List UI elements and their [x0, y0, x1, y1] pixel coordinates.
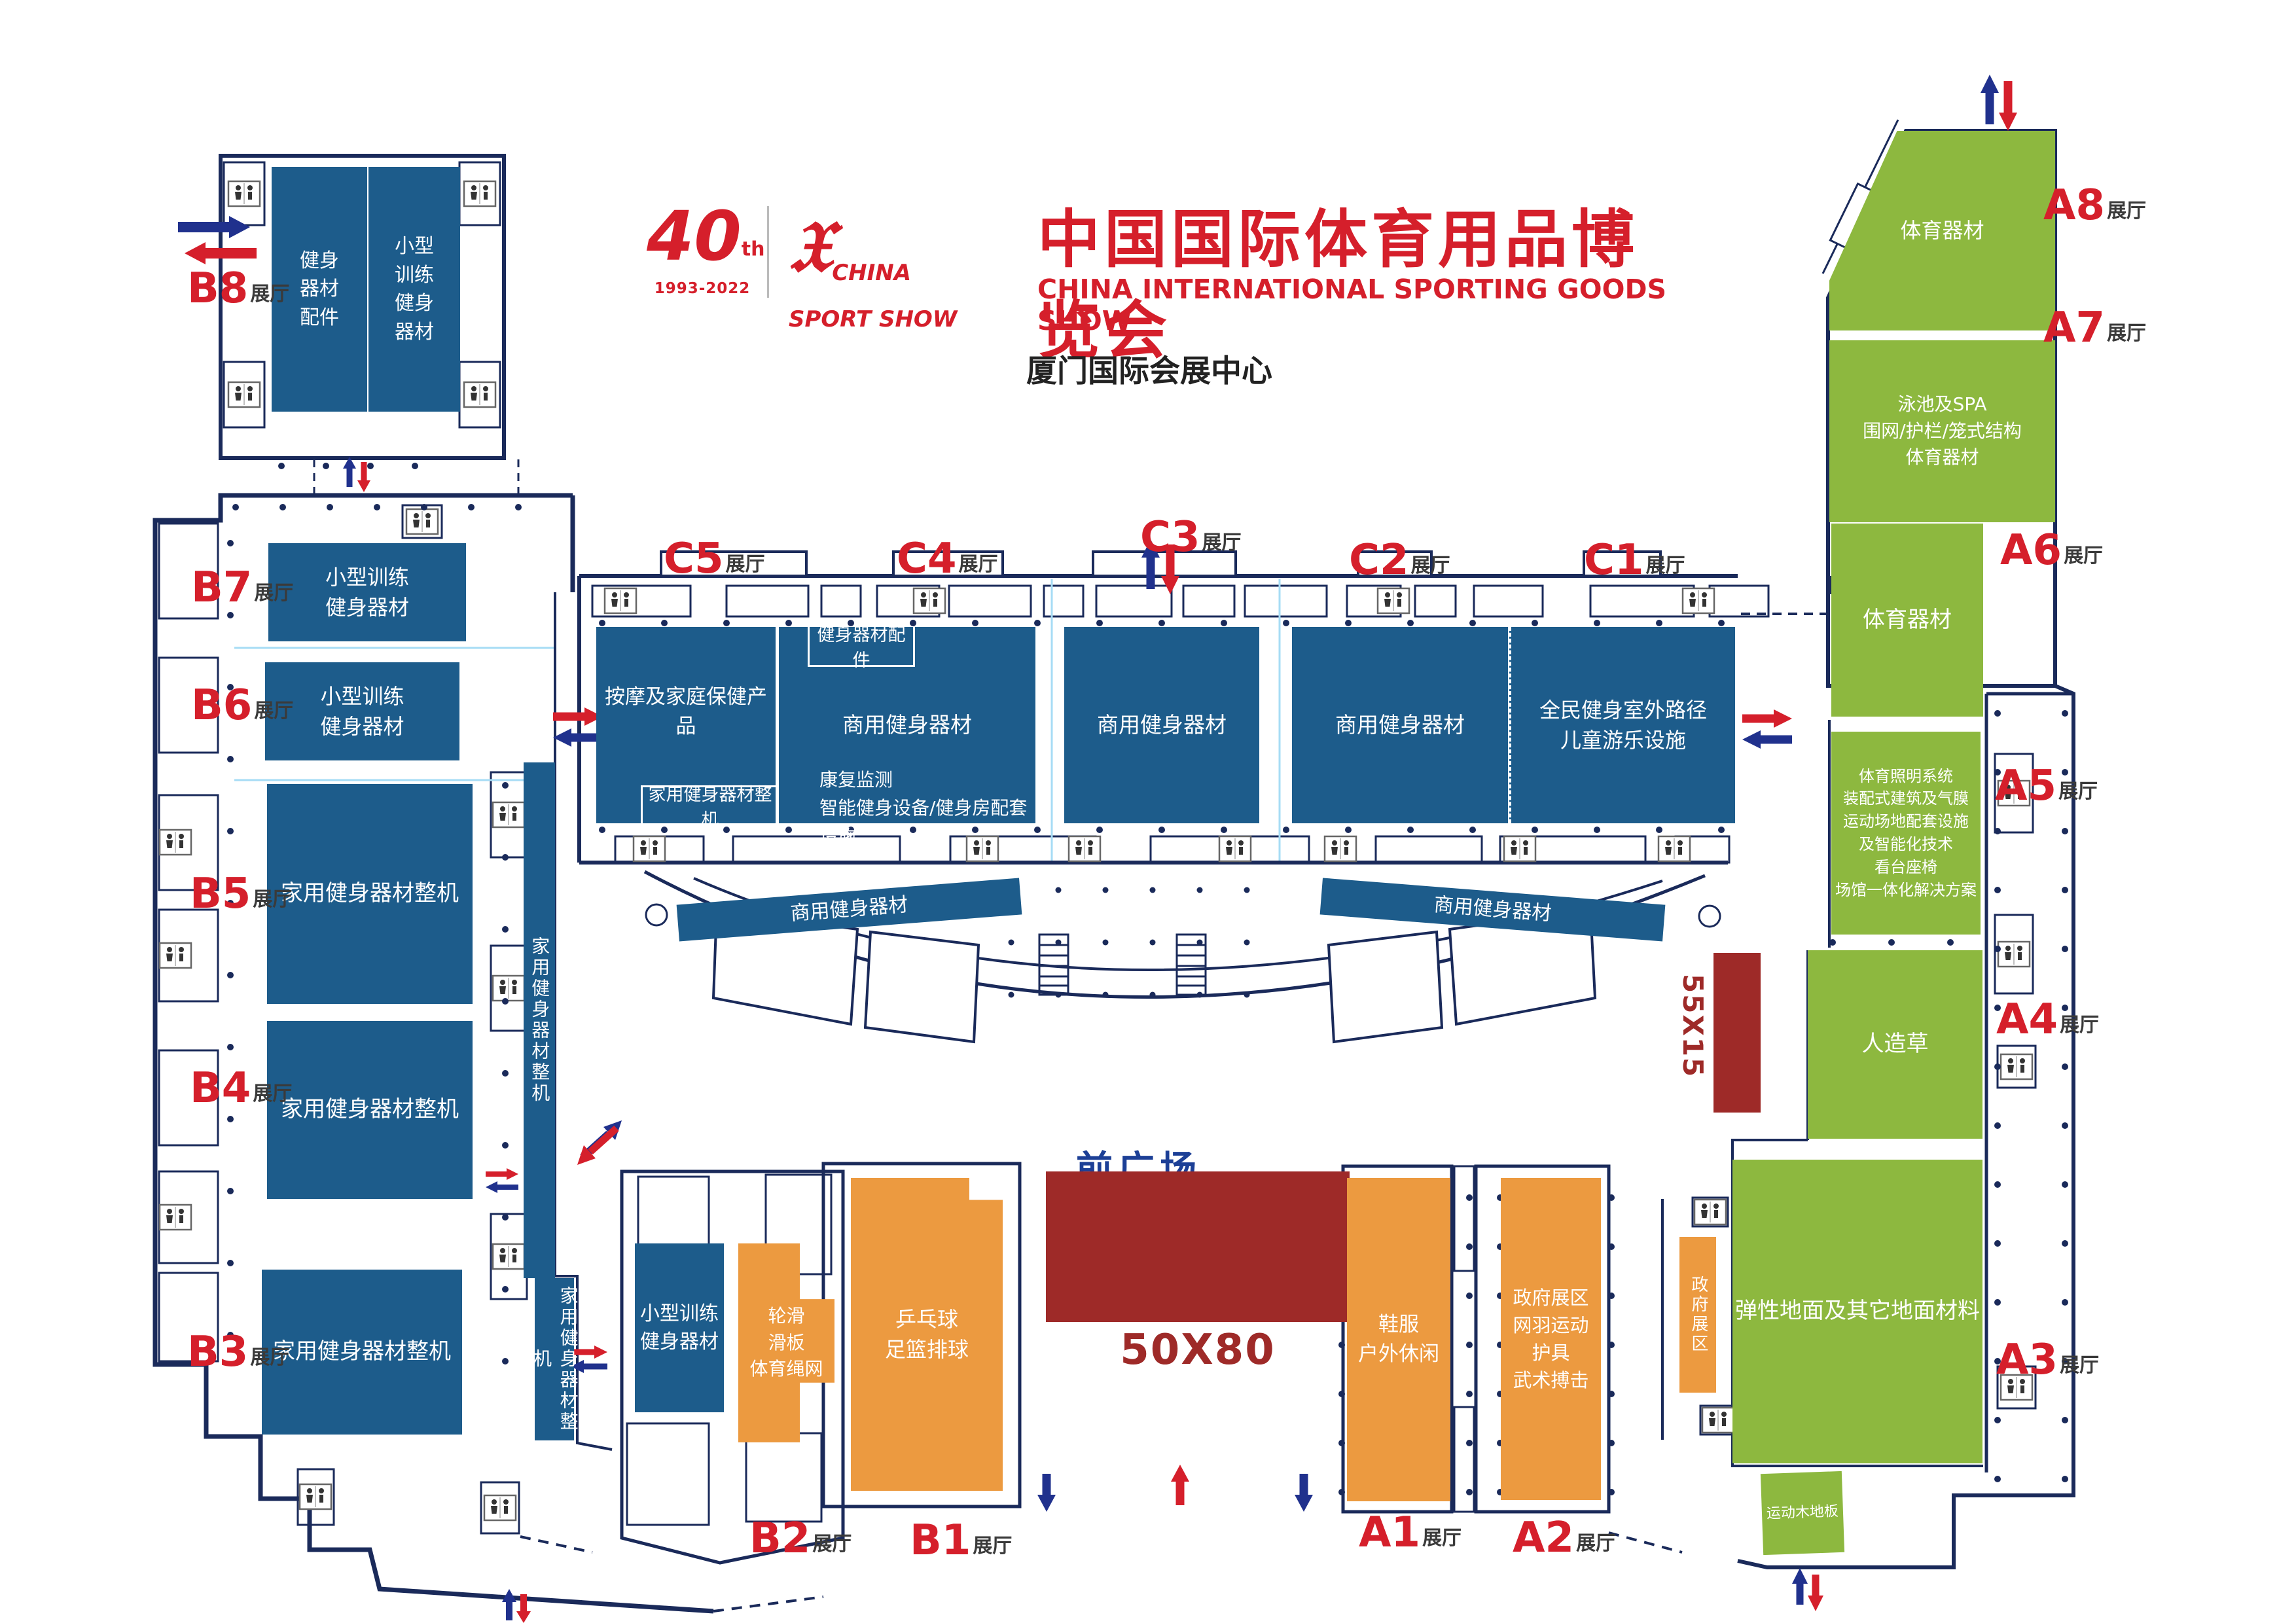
side-size-label: 55X15: [1677, 974, 1709, 1105]
hall-marker-c2: C2展厅: [1349, 543, 1450, 577]
hall-block-b6: 小型训练 健身器材: [265, 662, 459, 760]
arrow-blue-up-icon: [1792, 1568, 1808, 1584]
hall-block-b2-small-training: 小型训练 健身器材: [635, 1243, 724, 1412]
hall-block-b-strip-upper: 家用健身器材整机: [524, 762, 555, 1278]
anniversary-number: 40: [647, 196, 742, 276]
hall-marker-c1: C1展厅: [1584, 543, 1685, 577]
arrow-blue-up-icon: [1981, 75, 1999, 93]
hall-marker-a6: A6展厅: [2000, 533, 2103, 567]
hall-marker-a3: A3展厅: [1996, 1343, 2099, 1377]
hall-subzone-c4-accessories: 健身器材配件: [808, 627, 915, 667]
exhibition-floor-plan: 40th 1993-2022 𝔛 CHINA SPORT SHOW 中国国际体育…: [0, 0, 2296, 1623]
hall-block-b5: 家用健身器材整机: [267, 784, 473, 1004]
arrow-red-down-icon: [1808, 1596, 1823, 1611]
hall-marker-b7: B7展厅: [191, 571, 293, 605]
china-sport-show-logo: 𝔛 CHINA SPORT SHOW: [789, 203, 1005, 344]
arrow-red-left-icon: [185, 242, 206, 264]
hall-block-a6: 体育器材: [1831, 524, 1983, 717]
hall-block-b3: 家用健身器材整机: [262, 1270, 462, 1435]
arrow-blue-left-icon: [1742, 730, 1761, 749]
page-subtitle: CHINA INTERNATIONAL SPORTING GOODS SHOW: [1037, 274, 1679, 336]
hall-block-c1: 全民健身室外路径 儿童游乐设施: [1509, 627, 1735, 823]
dashed-boundaries: [520, 1533, 1682, 1611]
manhole-circle-icon: [1699, 906, 1720, 927]
hall-marker-b2: B2展厅: [749, 1522, 852, 1556]
hall-marker-b4: B4展厅: [190, 1071, 292, 1105]
anniversary-years: 1993-2022: [647, 280, 758, 297]
sport-show-figure-icon: 𝔛: [789, 215, 832, 279]
hall-block-b1: 乒乓球 足篮排球: [851, 1178, 1003, 1491]
arrow-blue-right-icon: [229, 216, 250, 238]
manhole-circle-icon: [646, 904, 667, 925]
anniversary-logo: 40th 1993-2022: [647, 194, 758, 310]
anniversary-suffix: th: [742, 238, 765, 261]
arrow-red-up-icon: [1171, 1465, 1189, 1482]
arrow-red-down-icon: [516, 1611, 531, 1623]
hall-block-a7: 泳池及SPA 围网/护栏/笼式结构 体育器材: [1829, 340, 2055, 522]
hall-marker-a7: A7展厅: [2043, 311, 2146, 345]
hall-marker-a8: A8展厅: [2043, 188, 2146, 223]
arrow-blue-down-icon: [1295, 1495, 1313, 1512]
side-block-55x15: [1713, 953, 1761, 1113]
hall-block-b8-right: 小型 训练 健身 器材: [368, 167, 460, 412]
stage-block-50x80: [1046, 1171, 1350, 1322]
hall-marker-c5: C5展厅: [664, 542, 765, 576]
arrow-blue-down-icon: [1037, 1495, 1056, 1512]
hall-block-c3: 商用健身器材: [1064, 627, 1259, 823]
logo-divider: [767, 206, 769, 298]
hall-block-a3: 弹性地面及其它地面材料: [1732, 1160, 1982, 1463]
arrow-red-down-icon: [357, 480, 370, 492]
arrow-red-right-icon: [1774, 709, 1792, 728]
hall-subzone-c5-home-fitness: 家用健身器材整机: [641, 785, 780, 826]
logo-line2: SPORT SHOW: [789, 306, 957, 332]
hall-subzone-c4-rehab: 康复监测 智能健身设备/健身房配套设施: [819, 766, 1029, 851]
hall-block-b-strip-lower: 家用健身器材整机: [535, 1278, 574, 1440]
hall-marker-b6: B6展厅: [191, 688, 293, 722]
hall-marker-b5: B5展厅: [190, 877, 292, 911]
stage-size-label: 50X80: [1106, 1326, 1289, 1374]
hall-block-b4: 家用健身器材整机: [267, 1021, 473, 1199]
arrow-blue-left-icon: [486, 1181, 497, 1193]
logo-line1: CHINA: [832, 260, 911, 286]
hall-marker-c4: C4展厅: [897, 542, 998, 576]
hall-marker-b3: B3展厅: [187, 1335, 289, 1369]
hall-block-a4: 人造草: [1808, 950, 1982, 1139]
hall-block-c2: 商用健身器材: [1292, 627, 1508, 823]
hall-block-gov-zone: 政府展区: [1679, 1237, 1716, 1393]
hall-marker-a5: A5展厅: [1995, 769, 2098, 803]
venue-name: 厦门国际会展中心: [1026, 346, 1272, 391]
hall-block-a5: 体育照明系统 装配式建筑及气膜 运动场地配套设施 及智能化技术 看台座椅 场馆一…: [1831, 732, 1981, 935]
arrow-red-right-icon: [594, 1346, 607, 1359]
hall-marker-c3: C3展厅: [1140, 520, 1242, 554]
hall-marker-b1: B1展厅: [910, 1524, 1012, 1558]
hall-marker-a4: A4展厅: [1996, 1003, 2099, 1037]
arrow-red-down-icon: [1999, 113, 2017, 131]
hall-marker-a2: A2展厅: [1513, 1521, 1615, 1555]
hall-block-a2: 政府展区 网羽运动 护具 武术搏击: [1501, 1178, 1601, 1500]
hall-marker-a1: A1展厅: [1359, 1516, 1462, 1550]
arrow-red-right-icon: [507, 1168, 518, 1180]
hall-block-wood-floor: 运动木地板: [1761, 1471, 1844, 1555]
hall-block-b7: 小型训练 健身器材: [268, 543, 466, 641]
hall-block-a1: 鞋服 户外休闲: [1347, 1178, 1450, 1501]
hall-marker-b8: B8展厅: [187, 272, 289, 306]
